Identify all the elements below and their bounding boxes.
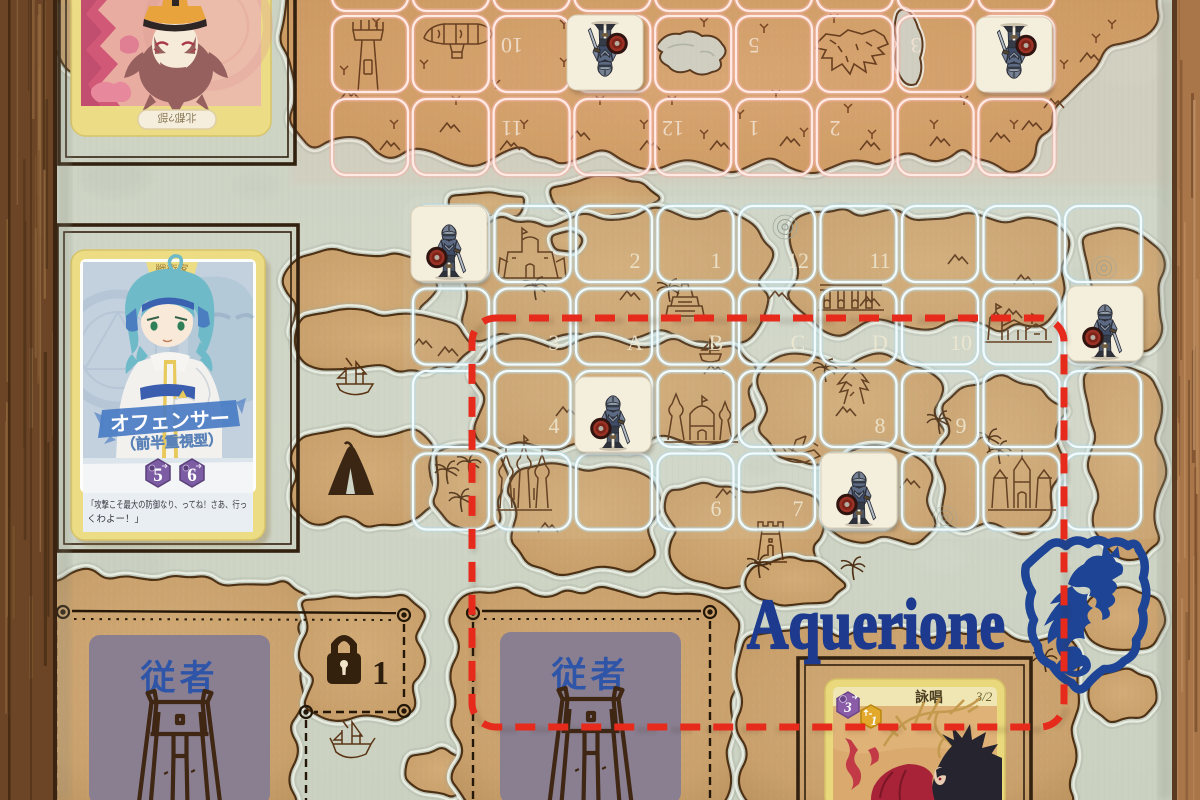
svg-text:5: 5 (749, 33, 760, 58)
svg-text:3: 3 (549, 330, 560, 355)
svg-text:12: 12 (662, 116, 684, 141)
svg-text:2: 2 (630, 248, 641, 273)
svg-text:2: 2 (830, 116, 841, 141)
svg-text:くわよー！」: くわよー！」 (87, 514, 144, 525)
svg-text:Aquerione: Aquerione (747, 586, 1005, 664)
svg-text:1: 1 (749, 116, 760, 141)
svg-text:1: 1 (372, 655, 389, 692)
svg-text:10: 10 (950, 330, 972, 355)
svg-text:1: 1 (871, 713, 878, 728)
svg-text:B: B (709, 330, 724, 355)
svg-text:12: 12 (787, 248, 809, 273)
svg-text:11: 11 (869, 248, 890, 273)
svg-text:6: 6 (711, 496, 722, 521)
svg-text:8: 8 (875, 413, 886, 438)
svg-text:3: 3 (911, 33, 922, 58)
svg-text:「攻撃こそ最大の防御なり、ってね！さあ、行っ: 「攻撃こそ最大の防御なり、ってね！さあ、行っ (87, 499, 247, 511)
svg-text:10: 10 (501, 33, 523, 58)
svg-text:4: 4 (549, 413, 560, 438)
svg-text:A: A (627, 330, 643, 355)
svg-text:1: 1 (711, 248, 722, 273)
svg-text:7: 7 (793, 496, 804, 521)
svg-text:9: 9 (956, 413, 967, 438)
svg-text:北都?部: 北都?部 (157, 111, 196, 125)
svg-text:D: D (872, 330, 888, 355)
svg-text:C: C (791, 330, 806, 355)
svg-text:11: 11 (501, 116, 522, 141)
